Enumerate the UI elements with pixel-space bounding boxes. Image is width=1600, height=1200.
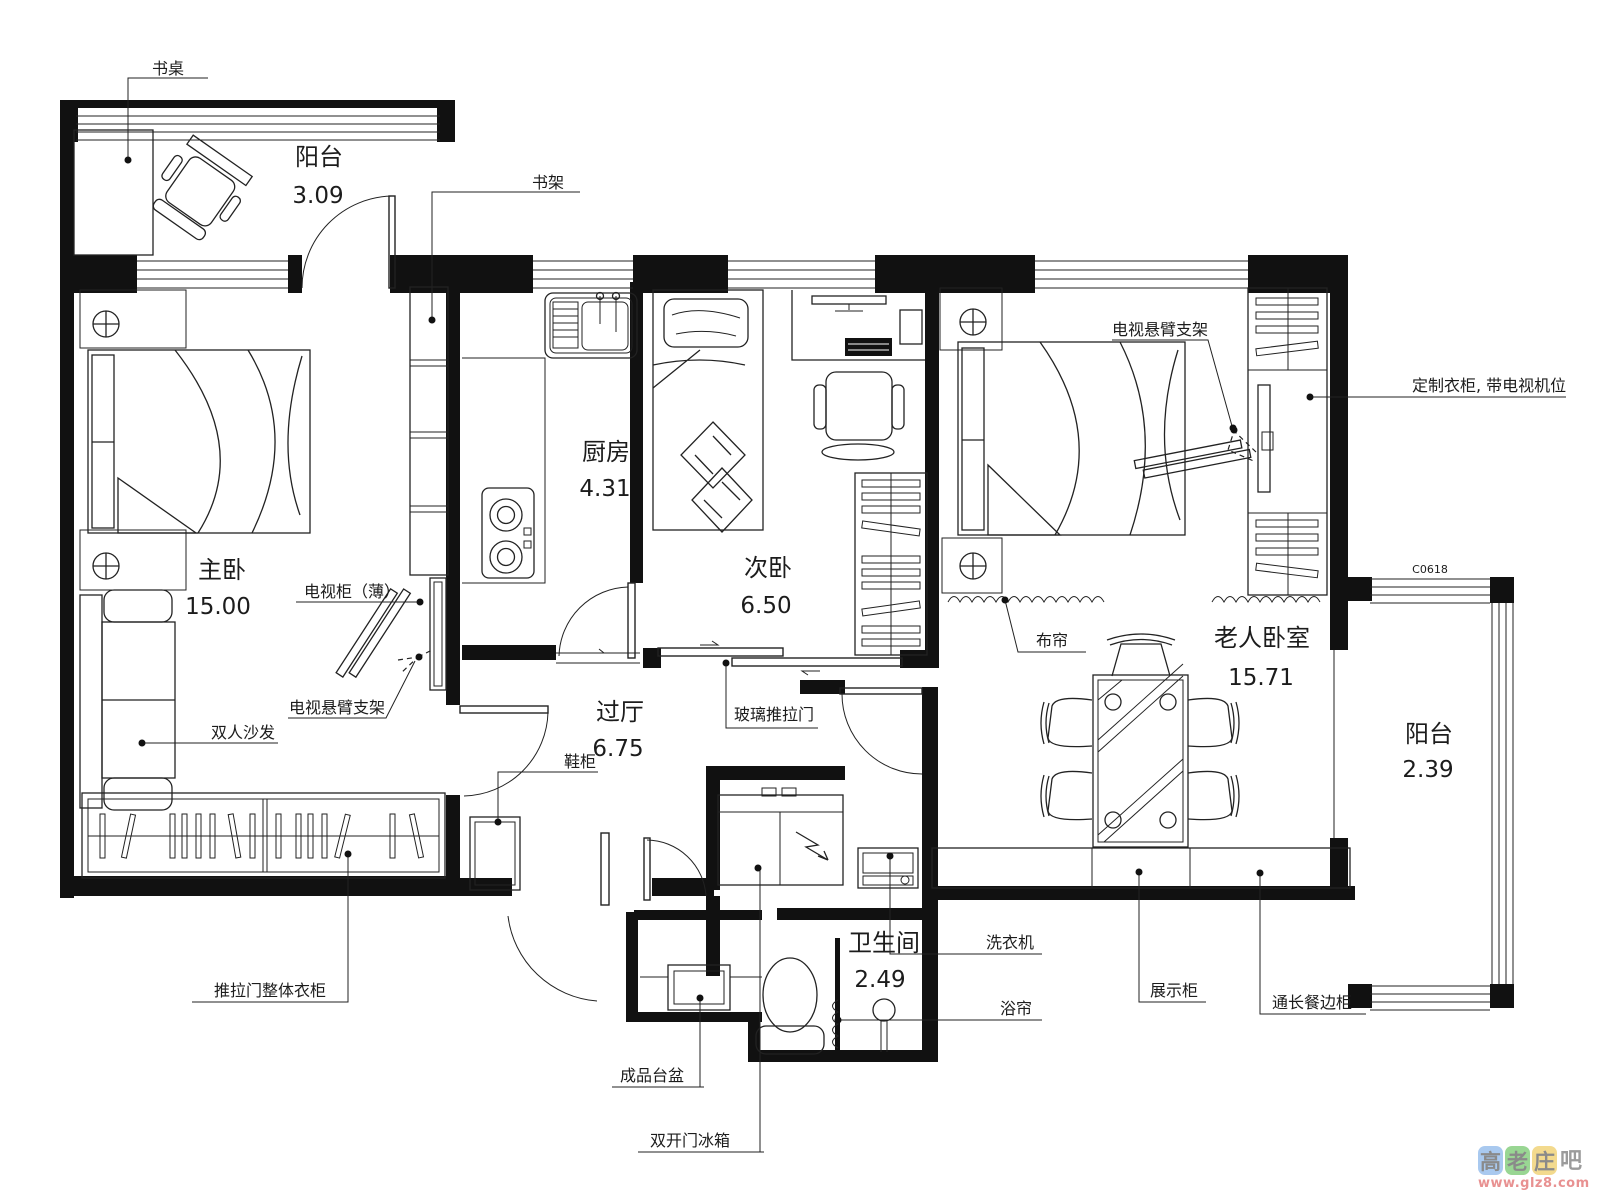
shelf-bars xyxy=(1256,298,1319,578)
fridge xyxy=(718,788,843,885)
room-name: 厨房 xyxy=(582,438,630,466)
room-name: 阳台 xyxy=(1405,720,1453,748)
sliding-wardrobe-label: 推拉门整体衣柜 xyxy=(214,981,326,1000)
master-bed xyxy=(88,350,310,533)
room-name: 次卧 xyxy=(744,554,792,582)
annotation-shower-curtain: 浴帘 xyxy=(835,999,1043,1024)
door-entry-main xyxy=(508,833,609,1001)
elder-tv-arm xyxy=(1134,427,1256,480)
sideboard-label: 通长餐边柜 xyxy=(1272,993,1352,1012)
room-balcony-top: 阳台 3.09 xyxy=(292,143,343,209)
window-balcony-top xyxy=(76,116,440,140)
room-bathroom: 卫生间 2.49 xyxy=(848,929,920,993)
window-code-label: C0618 xyxy=(1412,563,1448,576)
fridge-label: 双开门冰箱 xyxy=(650,1131,730,1150)
basin-label: 成品台盆 xyxy=(620,1066,684,1085)
room-area: 15.00 xyxy=(185,594,251,620)
watermark-url: www.glz8.com xyxy=(1478,1176,1598,1191)
room-area: 2.39 xyxy=(1402,757,1453,783)
room-second-bedroom: 次卧 6.50 xyxy=(740,554,792,619)
custom-wardrobe-unit xyxy=(1248,288,1327,595)
room-hallway: 过厅 6.75 xyxy=(592,698,644,762)
sideboard-band xyxy=(932,848,1350,888)
dining-chair xyxy=(1041,771,1092,819)
floor-plan-drawing: 书桌 书架 电视柜（薄） 电视悬臂支架 双人沙发 鞋柜 xyxy=(0,0,1600,1200)
room-name: 卫生间 xyxy=(848,929,920,957)
door-master-bedroom xyxy=(460,706,548,796)
dining-chair-top xyxy=(1107,634,1175,676)
room-name: 老人卧室 xyxy=(1214,624,1310,652)
tv-arm-label: 电视悬臂支架 xyxy=(1112,320,1208,339)
windows xyxy=(76,116,1513,1010)
column-icon xyxy=(960,553,986,579)
annotation-tv-cabinet: 电视柜（薄） xyxy=(296,582,424,606)
room-name: 阳台 xyxy=(295,143,343,171)
room-area: 3.09 xyxy=(292,183,343,209)
watermark: 高 老 庄 吧 www.glz8.com xyxy=(1478,1143,1598,1191)
room-area: 15.71 xyxy=(1228,665,1294,691)
shoe-cabinet-label: 鞋柜 xyxy=(564,752,596,771)
washing-machine-label: 洗衣机 xyxy=(986,933,1034,952)
single-bed xyxy=(653,290,763,532)
watermark-char-tile: 庄 xyxy=(1532,1146,1557,1175)
dining-chair xyxy=(1188,771,1239,819)
door-kitchen xyxy=(559,583,635,658)
watermark-tiles: 高 老 庄 吧 xyxy=(1478,1143,1598,1175)
office-chair xyxy=(814,372,904,460)
sofa-label: 双人沙发 xyxy=(211,723,275,742)
second-wardrobe xyxy=(855,473,927,655)
master-wardrobe xyxy=(82,793,445,878)
door-elder-bedroom xyxy=(840,688,922,774)
room-area: 4.31 xyxy=(579,476,630,502)
curtain-label: 布帘 xyxy=(1036,631,1068,650)
tv-cabinet-label: 电视柜（薄） xyxy=(304,582,400,601)
floor-plan-page: 书桌 书架 电视柜（薄） 电视悬臂支架 双人沙发 鞋柜 xyxy=(0,0,1600,1200)
annotation-basin: 成品台盆 xyxy=(612,995,704,1088)
door-balcony-top xyxy=(302,196,395,288)
watermark-suffix: 吧 xyxy=(1559,1143,1582,1175)
annotation-fridge: 双开门冰箱 xyxy=(638,865,764,1153)
column-icon xyxy=(960,309,986,335)
desk-label: 书桌 xyxy=(152,59,184,78)
annotation-tv-arm-right: 电视悬臂支架 xyxy=(1112,320,1237,432)
bookshelf-column xyxy=(410,287,448,575)
column-icon xyxy=(93,553,119,579)
window-right-balcony xyxy=(1334,579,1513,1010)
shower-head xyxy=(873,999,895,1052)
double-sofa xyxy=(80,590,175,810)
annotation-sofa: 双人沙发 xyxy=(139,723,279,747)
room-balcony-right: 阳台 2.39 xyxy=(1402,720,1453,783)
kitchen-sink xyxy=(545,293,637,359)
elder-bed xyxy=(958,342,1185,535)
shower-curtain-label: 浴帘 xyxy=(1000,999,1032,1018)
bookshelf-label: 书架 xyxy=(532,173,564,192)
room-name: 主卧 xyxy=(198,556,246,584)
dining-table xyxy=(1041,634,1239,847)
kitchen-stove xyxy=(482,488,534,578)
annotation-desk: 书桌 xyxy=(125,59,209,164)
watermark-char-tile: 高 xyxy=(1478,1146,1503,1175)
room-area: 6.75 xyxy=(592,736,643,762)
annotation-sliding-wardrobe: 推拉门整体衣柜 xyxy=(192,851,352,1003)
custom-wardrobe-label: 定制衣柜, 带电视机位 xyxy=(1412,376,1566,395)
watermark-char-tile: 老 xyxy=(1505,1146,1530,1175)
toilet xyxy=(756,958,824,1054)
dining-chair xyxy=(1041,698,1092,746)
tv-arm-label: 电视悬臂支架 xyxy=(289,698,385,717)
basin xyxy=(640,965,762,1010)
column-icon xyxy=(93,311,119,337)
room-area: 2.49 xyxy=(854,967,905,993)
annotation-curtain: 布帘 xyxy=(1002,597,1087,653)
annotation-shoe-cabinet: 鞋柜 xyxy=(495,752,599,826)
glass-door-label: 玻璃推拉门 xyxy=(734,705,814,724)
room-name: 过厅 xyxy=(596,698,644,726)
room-area: 6.50 xyxy=(740,593,791,619)
room-elder-bedroom: 老人卧室 15.71 xyxy=(1214,624,1310,691)
dining-chair xyxy=(1188,698,1239,746)
room-kitchen: 厨房 4.31 xyxy=(579,438,630,502)
balcony-desk xyxy=(74,130,256,255)
display-cabinet-label: 展示柜 xyxy=(1150,981,1198,1000)
room-master-bedroom: 主卧 15.00 xyxy=(185,556,251,620)
glass-sliding-door-panels xyxy=(556,641,902,675)
desk-computer xyxy=(792,290,925,460)
